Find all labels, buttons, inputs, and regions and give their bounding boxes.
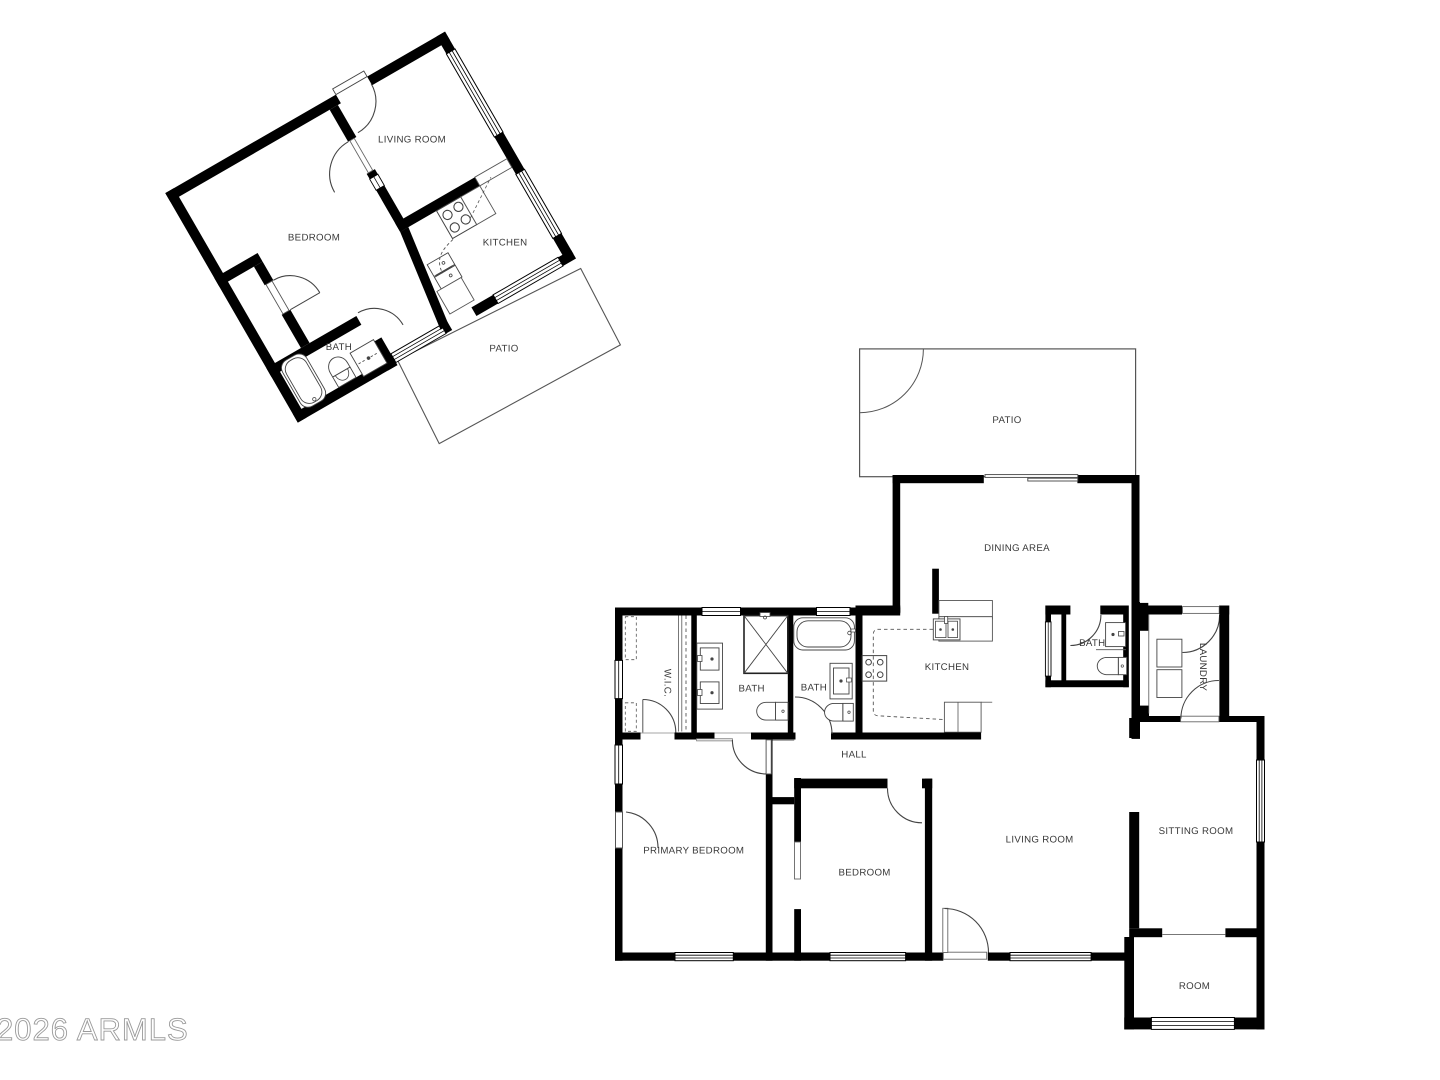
svg-text:W.I.C.: W.I.C.	[662, 669, 673, 697]
svg-text:DINING AREA: DINING AREA	[984, 543, 1050, 554]
svg-text:BATH: BATH	[326, 342, 352, 353]
svg-text:KITCHEN: KITCHEN	[925, 662, 970, 673]
svg-text:ROOM: ROOM	[1179, 981, 1210, 992]
svg-text:LIVING ROOM: LIVING ROOM	[1006, 835, 1074, 846]
svg-text:LIVING ROOM: LIVING ROOM	[378, 134, 446, 145]
svg-text:PRIMARY BEDROOM: PRIMARY BEDROOM	[643, 845, 744, 856]
svg-text:BATH: BATH	[1079, 638, 1105, 649]
svg-text:KITCHEN: KITCHEN	[483, 238, 528, 249]
svg-text:HALL: HALL	[841, 750, 867, 761]
svg-text:2026 ARMLS: 2026 ARMLS	[0, 1012, 189, 1047]
svg-text:PATIO: PATIO	[992, 415, 1021, 426]
svg-text:BEDROOM: BEDROOM	[839, 868, 891, 879]
svg-text:SITTING ROOM: SITTING ROOM	[1159, 826, 1234, 837]
svg-text:BATH: BATH	[801, 683, 827, 694]
svg-text:BATH: BATH	[739, 684, 765, 695]
svg-text:LAUNDRY: LAUNDRY	[1197, 643, 1208, 691]
svg-text:BEDROOM: BEDROOM	[288, 233, 340, 244]
svg-text:PATIO: PATIO	[489, 344, 518, 355]
